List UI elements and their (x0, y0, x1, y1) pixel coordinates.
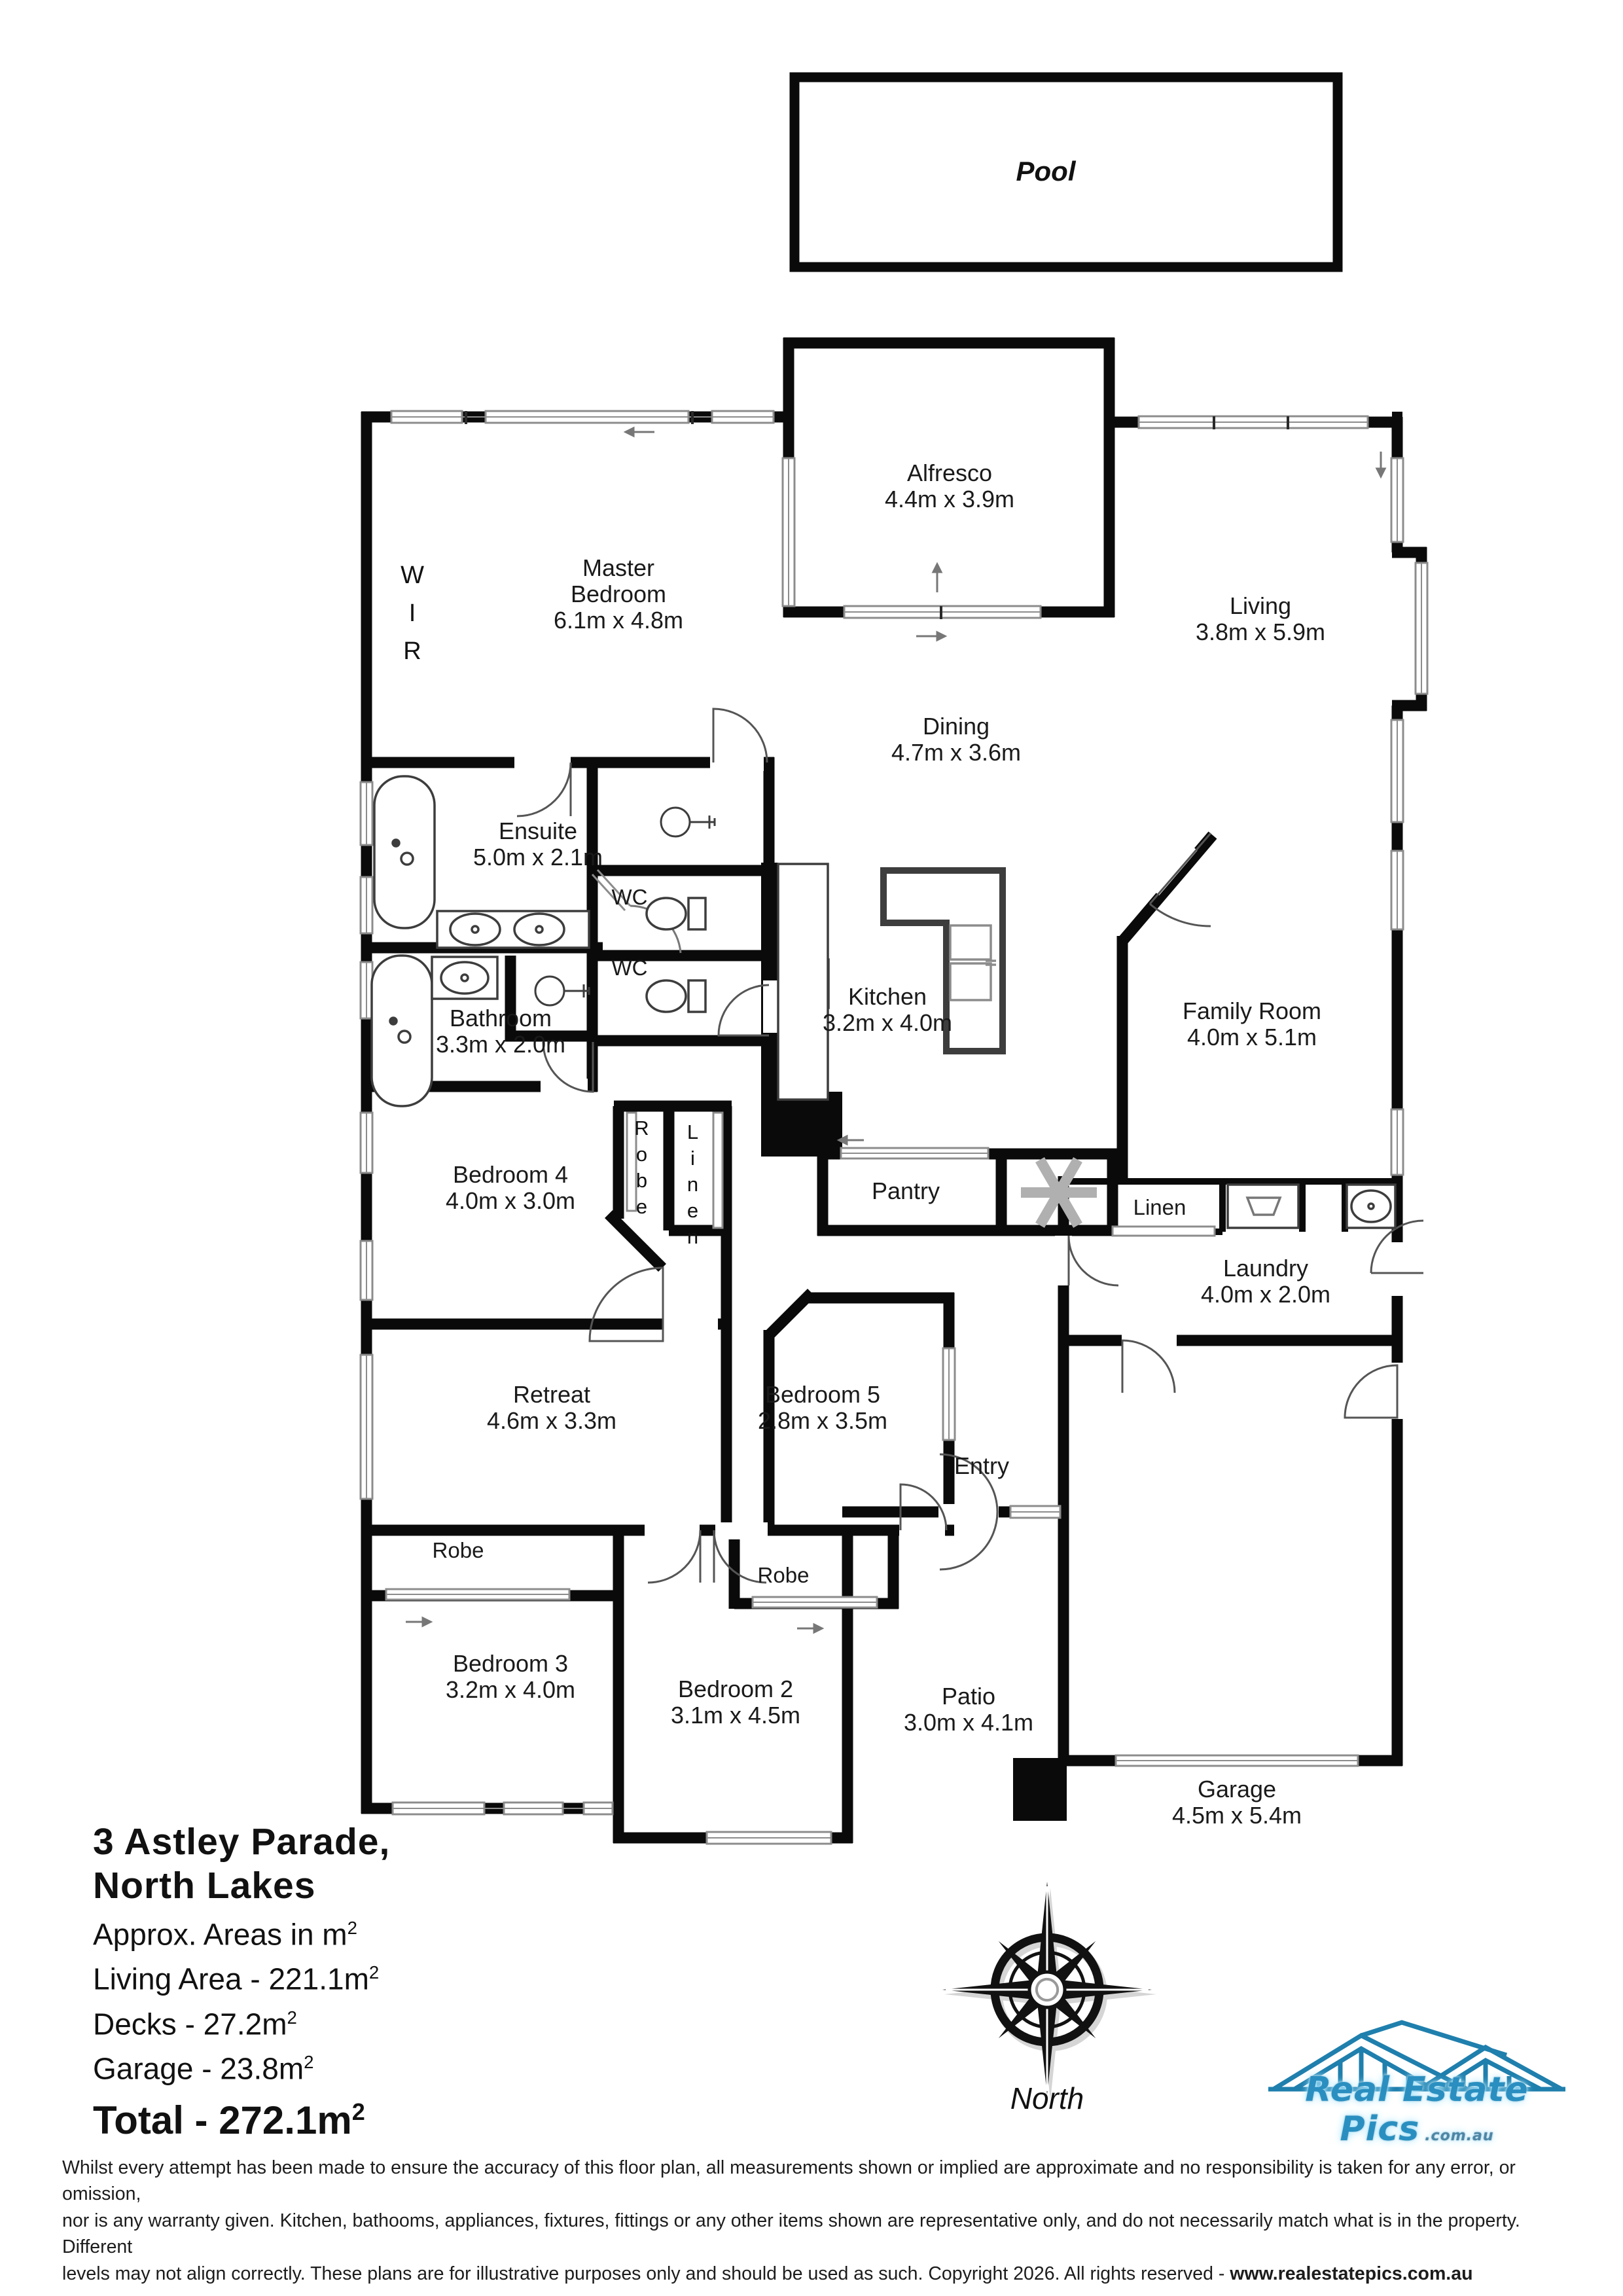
logo-text: Real Estate Pics.com.au (1260, 2070, 1574, 2149)
summary-block: 3 Astley Parade, North Lakes Approx. Are… (93, 1823, 390, 2140)
disclaimer-website-link[interactable]: www.realestatepics.com.au (1230, 2263, 1472, 2284)
room-label-linen-hall: Linen (681, 1121, 704, 1251)
room-label-master-2: Bedroom (571, 581, 666, 607)
room-dims-kitchen: 3.2m x 4.0m (823, 1009, 952, 1036)
toilet-icon (647, 898, 705, 929)
room-dims-garage: 4.5m x 5.4m (1172, 1802, 1302, 1829)
garage-line: Garage - 23.8m2 (93, 2053, 390, 2083)
areas-heading: Approx. Areas in m2 (93, 1919, 390, 1949)
room-label-dining: Dining (923, 713, 990, 740)
room-label-wir: WIR (398, 562, 426, 675)
room-label-robe-hall: Robe (630, 1117, 653, 1221)
washer-icon (1228, 1185, 1298, 1228)
disclaimer-line-2: nor is any warranty given. Kitchen, bath… (62, 2210, 1520, 2257)
room-label-kitchen: Kitchen (848, 983, 927, 1010)
pool-label: Pool (1016, 156, 1077, 187)
fridge-icon (950, 925, 996, 1000)
room-dims-family: 4.0m x 5.1m (1187, 1024, 1317, 1050)
room-dims-bathroom: 3.3m x 2.0m (436, 1031, 565, 1058)
room-label-laundry: Laundry (1223, 1255, 1308, 1282)
living-area-line: Living Area - 221.1m2 (93, 1964, 390, 1994)
room-dims-patio: 3.0m x 4.1m (904, 1709, 1033, 1736)
room-label-bedroom2: Bedroom 2 (678, 1676, 793, 1702)
sup: 2 (348, 1918, 357, 1938)
walls (361, 338, 1427, 1843)
room-dims-bedroom4: 4.0m x 3.0m (446, 1187, 575, 1214)
room-dims-ensuite: 5.0m x 2.1m (473, 844, 603, 870)
decks-line: Decks - 27.2m2 (93, 2009, 390, 2039)
disclaimer: Whilst every attempt has been made to en… (62, 2155, 1574, 2287)
sup: 2 (352, 2098, 365, 2125)
room-label-robe-bed2: Robe (758, 1563, 810, 1587)
shower-icon (535, 977, 589, 1005)
address-line-2: North Lakes (93, 1867, 390, 1905)
logo-suffix: .com.au (1425, 2128, 1493, 2144)
room-label-bedroom3: Bedroom 3 (453, 1650, 568, 1677)
total-line: Total - 272.1m2 (93, 2100, 390, 2140)
room-dims-living: 3.8m x 5.9m (1196, 619, 1325, 645)
sup: 2 (304, 2052, 313, 2072)
shower-icon (661, 808, 715, 836)
room-label-alfresco: Alfresco (907, 459, 992, 486)
disclaimer-line-3: levels may not align correctly. These pl… (62, 2263, 1230, 2284)
room-dims-bedroom3: 3.2m x 4.0m (446, 1676, 575, 1703)
room-label-family: Family Room (1183, 997, 1321, 1024)
room-dims-dining: 4.7m x 3.6m (891, 739, 1021, 766)
disclaimer-line-1: Whilst every attempt has been made to en… (62, 2157, 1516, 2204)
floor-plan-page: { "pool": {"label": "Pool"}, "rooms": { … (0, 0, 1623, 2296)
room-label-pantry: Pantry (872, 1177, 940, 1204)
north-label: North (1010, 2081, 1084, 2115)
room-label-retreat: Retreat (513, 1381, 590, 1408)
toilet-icon (647, 980, 705, 1012)
sup: 2 (287, 2007, 297, 2028)
room-label-bathroom: Bathroom (450, 1005, 552, 1031)
sup: 2 (369, 1962, 379, 1982)
address-line-1: 3 Astley Parade, (93, 1823, 390, 1861)
laundry-tub-icon (1347, 1185, 1395, 1228)
room-label-bedroom4: Bedroom 4 (453, 1161, 568, 1188)
room-label-bedroom5: Bedroom 5 (765, 1381, 880, 1408)
room-dims-laundry: 4.0m x 2.0m (1201, 1281, 1330, 1308)
room-dims-alfresco: 4.4m x 3.9m (885, 486, 1014, 512)
realestatepics-logo: Real Estate Pics.com.au (1260, 2016, 1574, 2149)
compass-rose-icon (942, 1882, 1156, 2100)
room-label-linen-laundry: Linen (1133, 1195, 1186, 1219)
bathtub-ensuite (374, 776, 435, 928)
room-label-patio: Patio (942, 1683, 995, 1710)
room-dims-bedroom5: 2.8m x 3.5m (758, 1407, 887, 1434)
room-label-garage: Garage (1198, 1776, 1276, 1803)
room-dims-master: 6.1m x 4.8m (554, 607, 683, 634)
room-dims-bedroom2: 3.1m x 4.5m (671, 1702, 800, 1729)
room-label-living: Living (1230, 592, 1291, 619)
room-label-wc-lower: WC (612, 956, 648, 980)
room-label-robe-bed3: Robe (433, 1538, 484, 1562)
room-label-wc-upper: WC (612, 885, 648, 909)
room-label-entry: Entry (954, 1452, 1009, 1479)
room-dims-retreat: 4.6m x 3.3m (487, 1407, 616, 1434)
room-label-ensuite: Ensuite (499, 817, 577, 844)
room-label-master-1: Master (582, 554, 654, 581)
